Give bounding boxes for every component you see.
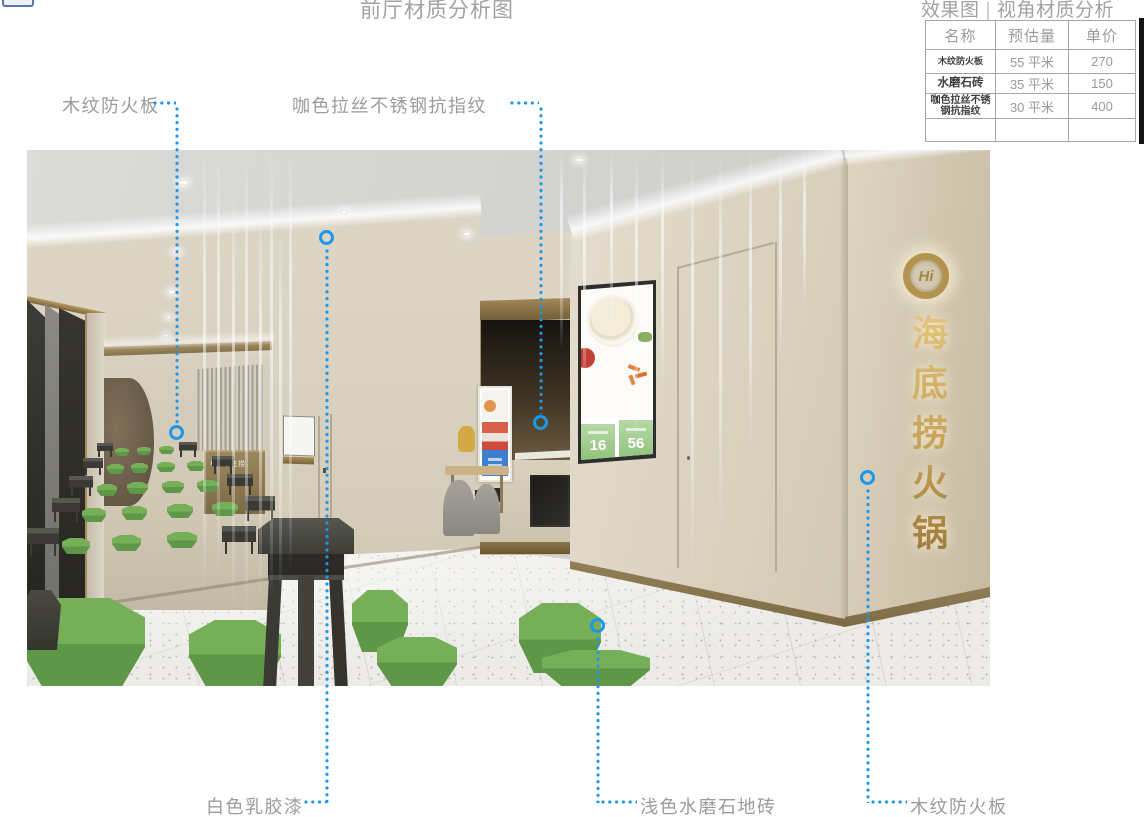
downlight	[340, 210, 348, 214]
table	[97, 443, 113, 457]
stool	[167, 504, 193, 518]
table-row: 水磨石砖 35 平米 150	[926, 74, 1136, 94]
kiosk-content-food	[484, 400, 496, 412]
callout-label: 木纹防火板	[910, 793, 1008, 817]
stool	[122, 506, 147, 520]
alcove-upper-wall	[480, 230, 570, 300]
downlight	[163, 334, 169, 337]
table-row-empty	[926, 119, 1136, 142]
side-table-leg	[329, 580, 348, 686]
yellow-chair	[458, 426, 475, 452]
callout-line	[325, 248, 329, 803]
legend-heading-right: 视角材质分析	[997, 0, 1114, 21]
alcove-gold-band	[480, 298, 570, 322]
design-board: 前厅材质分析图 效果图|视角材质分析 名称 预估量 单价 木纹防火板 55 平米…	[0, 0, 1144, 817]
header-price: 单价	[1069, 21, 1136, 50]
stool	[162, 481, 184, 493]
table-header-row: 名称 预估量 单价	[926, 21, 1136, 50]
light-streak	[635, 150, 638, 450]
table	[83, 458, 103, 475]
menu-greens-image	[638, 332, 652, 342]
menu-pot-image	[590, 298, 636, 344]
stool	[112, 535, 141, 551]
downlight	[165, 316, 172, 319]
table	[222, 526, 256, 554]
legend-heading-separator: |	[980, 0, 997, 21]
light-streak	[259, 210, 262, 600]
brand-badge-glyph: Hi	[919, 268, 934, 285]
callout-line	[600, 800, 637, 804]
light-streak	[203, 150, 206, 600]
callout-line	[866, 488, 870, 803]
menu-shrimp-image	[628, 364, 641, 372]
cabinet-niche	[530, 475, 570, 527]
cabinet-kick-gold	[480, 542, 575, 554]
light-streak	[583, 150, 586, 410]
entrance-divider	[45, 304, 59, 634]
callout-line	[870, 800, 907, 804]
stool	[62, 538, 90, 554]
callout-label: 咖色拉丝不锈钢抗指纹	[292, 92, 487, 118]
callout-line	[539, 106, 543, 414]
concealed-door-seam	[677, 268, 679, 568]
concealed-door-seam	[775, 242, 777, 572]
light-streak	[245, 150, 248, 620]
light-streak	[691, 150, 694, 570]
side-table-leg	[298, 576, 314, 686]
callout-label: 白色乳胶漆	[206, 793, 304, 817]
dark-stool	[27, 590, 61, 650]
stool	[115, 448, 129, 456]
door-keyhole	[687, 456, 690, 460]
wood-table-leg	[500, 475, 503, 513]
stool	[159, 446, 174, 454]
brand-sign-text: 海底捞火锅	[901, 314, 953, 604]
light-streak	[289, 150, 292, 570]
callout-line	[509, 101, 539, 105]
light-streak	[779, 150, 782, 360]
callout-marker	[860, 470, 875, 485]
light-streak	[661, 150, 664, 390]
table-row: 咖色拉丝不锈钢抗指纹 30 平米 400	[926, 94, 1136, 119]
table	[69, 476, 93, 496]
light-streak	[719, 150, 722, 530]
callout-label: 木纹防火板	[62, 92, 160, 118]
table	[179, 442, 197, 457]
callout-line	[303, 800, 326, 804]
light-streak	[560, 150, 563, 350]
downlight	[178, 180, 189, 185]
callout-marker	[533, 415, 548, 430]
menu-price-left: 16	[581, 437, 615, 454]
callout-line	[596, 636, 600, 803]
downlight	[575, 158, 584, 162]
stool	[127, 482, 148, 494]
light-streak	[749, 150, 752, 450]
light-streak	[803, 150, 806, 310]
menu-price-box-left: 16	[581, 424, 615, 460]
menu-display-screen: 16 56	[581, 284, 653, 460]
legend-heading: 效果图|视角材质分析	[921, 0, 1114, 22]
table	[27, 528, 59, 556]
downlight	[463, 232, 471, 236]
slat-screen	[195, 364, 265, 454]
entrance-dark-panel	[59, 308, 85, 624]
gray-chair	[473, 484, 500, 534]
materials-table: 名称 预估量 单价 木纹防火板 55 平米 270 水磨石砖 35 平米 150…	[925, 20, 1136, 142]
gray-chair	[443, 480, 475, 536]
callout-label: 浅色水磨石地砖	[640, 793, 777, 817]
wood-table	[445, 466, 509, 475]
callout-line	[152, 101, 176, 105]
light-streak	[279, 230, 282, 590]
interior-render: 海底捞	[27, 150, 990, 686]
stool	[97, 484, 117, 496]
page-title: 前厅材质分析图	[360, 0, 514, 24]
light-streak	[270, 150, 273, 600]
stool	[197, 480, 219, 492]
header-name: 名称	[926, 21, 996, 50]
stool	[167, 532, 197, 548]
light-streak	[232, 190, 235, 610]
table	[212, 456, 234, 474]
table	[52, 498, 80, 522]
light-streak	[610, 150, 613, 330]
wall-menu-board	[283, 415, 315, 456]
callout-marker	[590, 618, 605, 633]
stool	[157, 462, 175, 472]
light-streak	[217, 150, 220, 580]
header-qty: 预估量	[996, 21, 1069, 50]
side-table-leg	[263, 580, 282, 686]
callout-marker	[319, 230, 334, 245]
table-row: 木纹防火板 55 平米 270	[926, 50, 1136, 74]
table-edge-bar	[1139, 18, 1144, 144]
stool-large	[377, 637, 457, 686]
stool	[137, 447, 151, 455]
stool	[82, 508, 106, 522]
stool	[107, 464, 124, 474]
table	[227, 474, 253, 495]
callout-line	[175, 106, 179, 424]
legend-heading-left: 效果图	[921, 0, 980, 21]
stool	[131, 463, 148, 473]
callout-marker	[169, 425, 184, 440]
corner-shade	[840, 158, 848, 623]
kiosk-content-mid	[482, 422, 508, 450]
wall-menu-shelf	[283, 456, 314, 464]
brand-badge: Hi	[903, 253, 949, 299]
corner-mark	[2, 0, 34, 7]
